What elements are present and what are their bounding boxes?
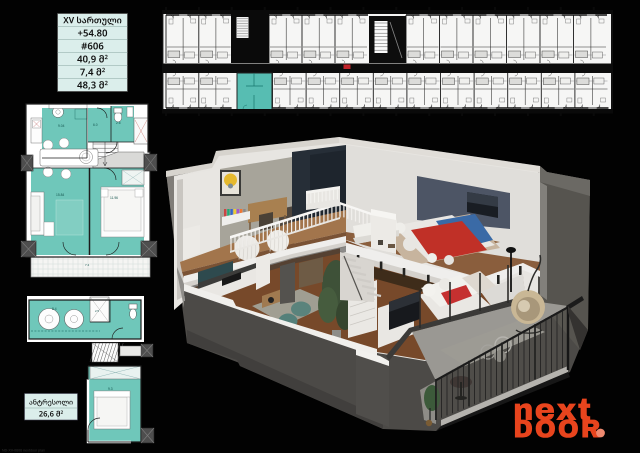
svg-text:2.6: 2.6 — [116, 121, 121, 125]
svg-text:9.3: 9.3 — [108, 387, 113, 391]
svg-text:15.84: 15.84 — [56, 193, 64, 197]
svg-text:2.5: 2.5 — [95, 309, 99, 313]
svg-text:8.4: 8.4 — [52, 307, 57, 311]
svg-text:6.0: 6.0 — [93, 123, 98, 127]
svg-text:ND-XV-0606 nextdoor plan: ND-XV-0606 nextdoor plan — [2, 449, 45, 453]
svg-text:7.4: 7.4 — [85, 263, 90, 267]
svg-text:11.96: 11.96 — [110, 196, 118, 200]
svg-text:9.04: 9.04 — [58, 124, 65, 128]
